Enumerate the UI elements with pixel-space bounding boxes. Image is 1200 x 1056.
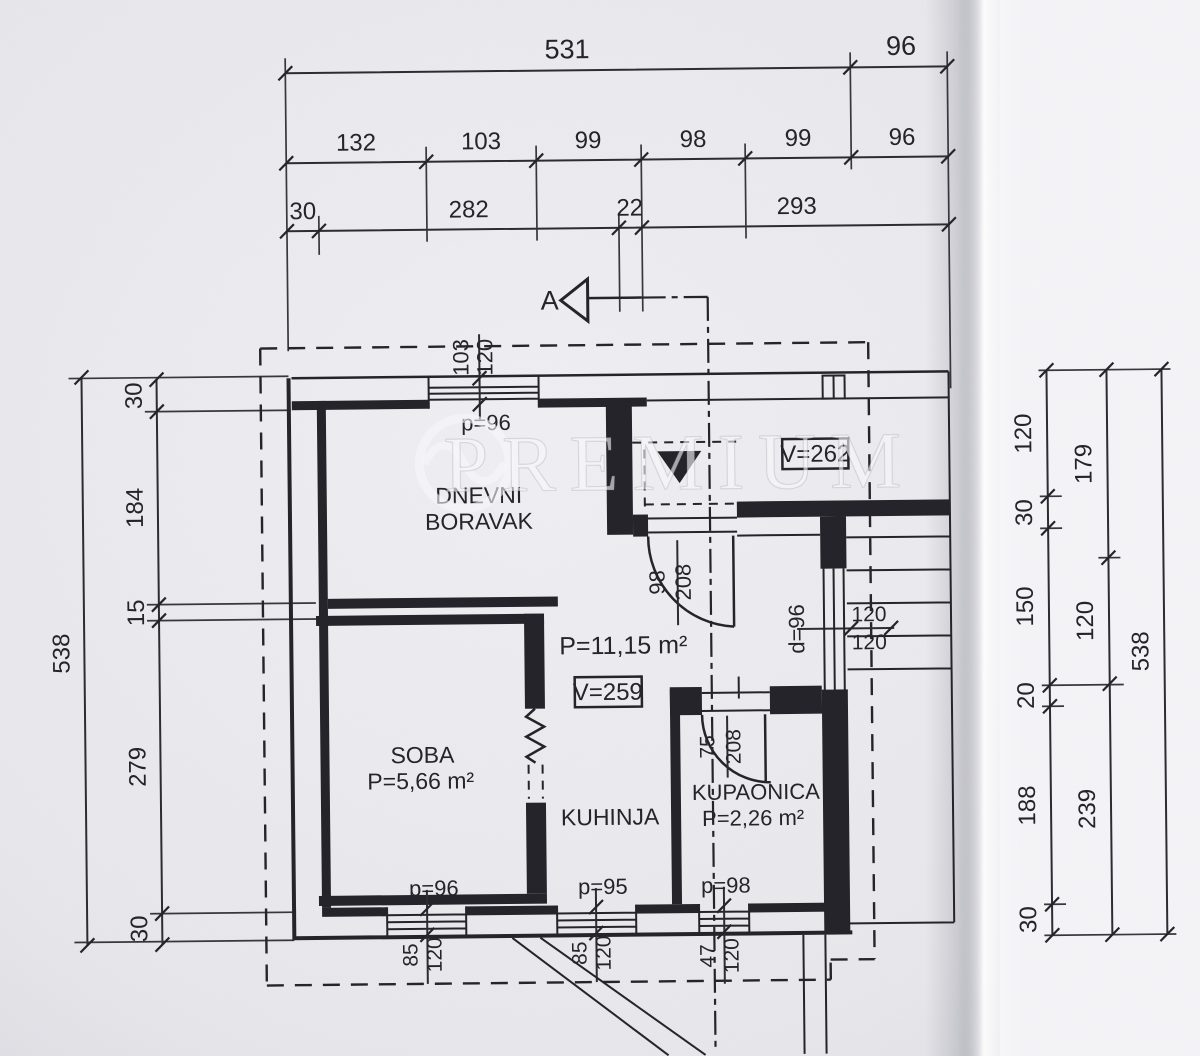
paper-grain — [0, 0, 1200, 1056]
floor-plan-photo: 531 96 132 103 99 98 99 96 30 282 22 293… — [0, 0, 1200, 1056]
floor-plan-svg: 531 96 132 103 99 98 99 96 30 282 22 293… — [0, 0, 1200, 1056]
